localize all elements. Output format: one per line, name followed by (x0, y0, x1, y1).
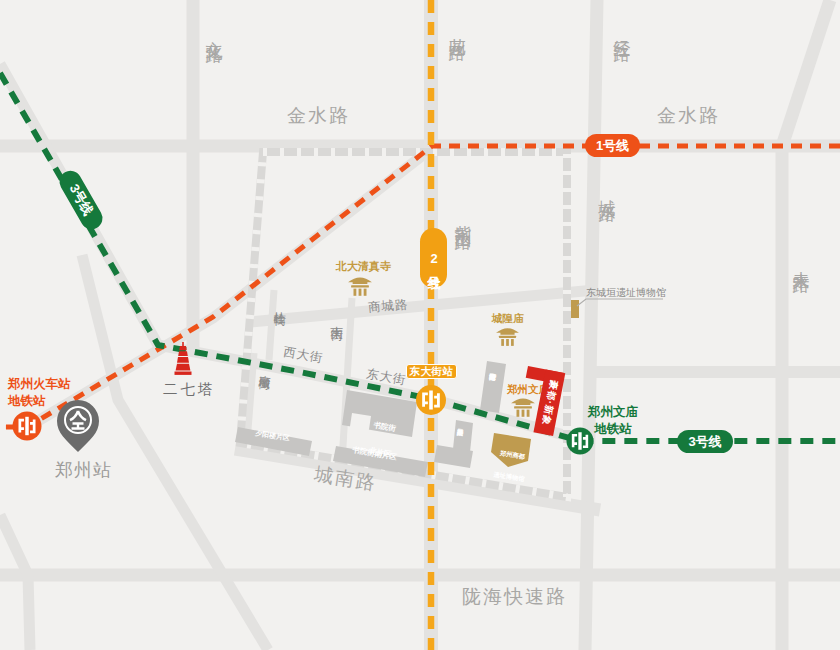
street-duling (269, 290, 274, 360)
line1-badge[interactable]: 1号线 (585, 134, 640, 157)
station-dongdajie-icon[interactable] (416, 385, 446, 415)
road-jingsan-chengdong (585, 0, 597, 650)
road-label-chengdong: 城东路 (597, 186, 617, 195)
building-meijing-col (453, 420, 473, 452)
district-label-line: 书院街 (373, 422, 397, 434)
road-label-jinshui-right: 金水路 (657, 105, 720, 127)
line2-badge[interactable]: 2号线 (420, 228, 447, 288)
road-weilai (782, 0, 830, 650)
station-label-line: 郑州火车站 (8, 376, 71, 393)
road-label-weilai: 未来路 (791, 257, 811, 266)
project-name: 豪都·新象 (539, 379, 561, 427)
mosque-temple-icon (348, 277, 372, 295)
building-notch (349, 413, 371, 436)
station-label-line: 地铁站 (8, 393, 71, 410)
landmark-label-mosque: 北大清真寺 (336, 260, 391, 273)
map-geometry (0, 0, 840, 650)
building-dongchengyuan (571, 300, 579, 318)
zhengzhou-map: 文化路 花园路 经三路 金水路 金水路 紫荆山路 城东路 未来路 陇海快速路 城… (0, 0, 840, 650)
station-badge-dongdajie[interactable]: 东大街站 (406, 364, 457, 379)
landmark-label-erqi-tower: 二七塔 (163, 381, 216, 398)
road-label-zijinshan: 紫荆山路 (453, 211, 473, 223)
road-label-longhai: 陇海快速路 (462, 586, 567, 608)
street-label-nandajie: 南大街 (329, 316, 343, 319)
road-label-wenhua: 文化路 (204, 27, 224, 36)
road-label-jingsan: 经三路 (612, 26, 632, 35)
station-label-line: 郑州文庙 (584, 404, 642, 421)
station-label-wenmiao[interactable]: 郑州文庙 地铁站 (584, 404, 642, 438)
road-label-huayuan: 花园路 (447, 25, 467, 34)
landmark-label-zhengzhou-station: 郑州站 (55, 460, 112, 481)
building-tawan (480, 361, 506, 413)
road-shangcheng (250, 290, 595, 322)
street-label-duling: 杜岭街 (272, 302, 286, 305)
museum-label-line: 郑州商都 (496, 449, 528, 461)
road-chengnan (235, 449, 600, 510)
road-bottomleft (0, 515, 30, 650)
chenghuangmiao-temple-icon (496, 328, 519, 346)
district-buildings (235, 299, 663, 477)
station-label-line: 地铁站 (584, 421, 642, 438)
road-label-jinshui-left: 金水路 (287, 105, 350, 127)
museum-label-line: 遗址博物馆 (493, 471, 525, 483)
landmark-label-dongchengyuan: 东城垣遗址博物馆 (586, 287, 666, 299)
station-label-railway-metro[interactable]: 郑州火车站 地铁站 (8, 376, 71, 410)
line3-badge-east[interactable]: 3号线 (677, 430, 733, 453)
station-railway-metro-icon[interactable] (13, 412, 42, 441)
landmark-label-chenghuangmiao: 城隍庙 (492, 312, 524, 324)
road-network (0, 0, 840, 650)
